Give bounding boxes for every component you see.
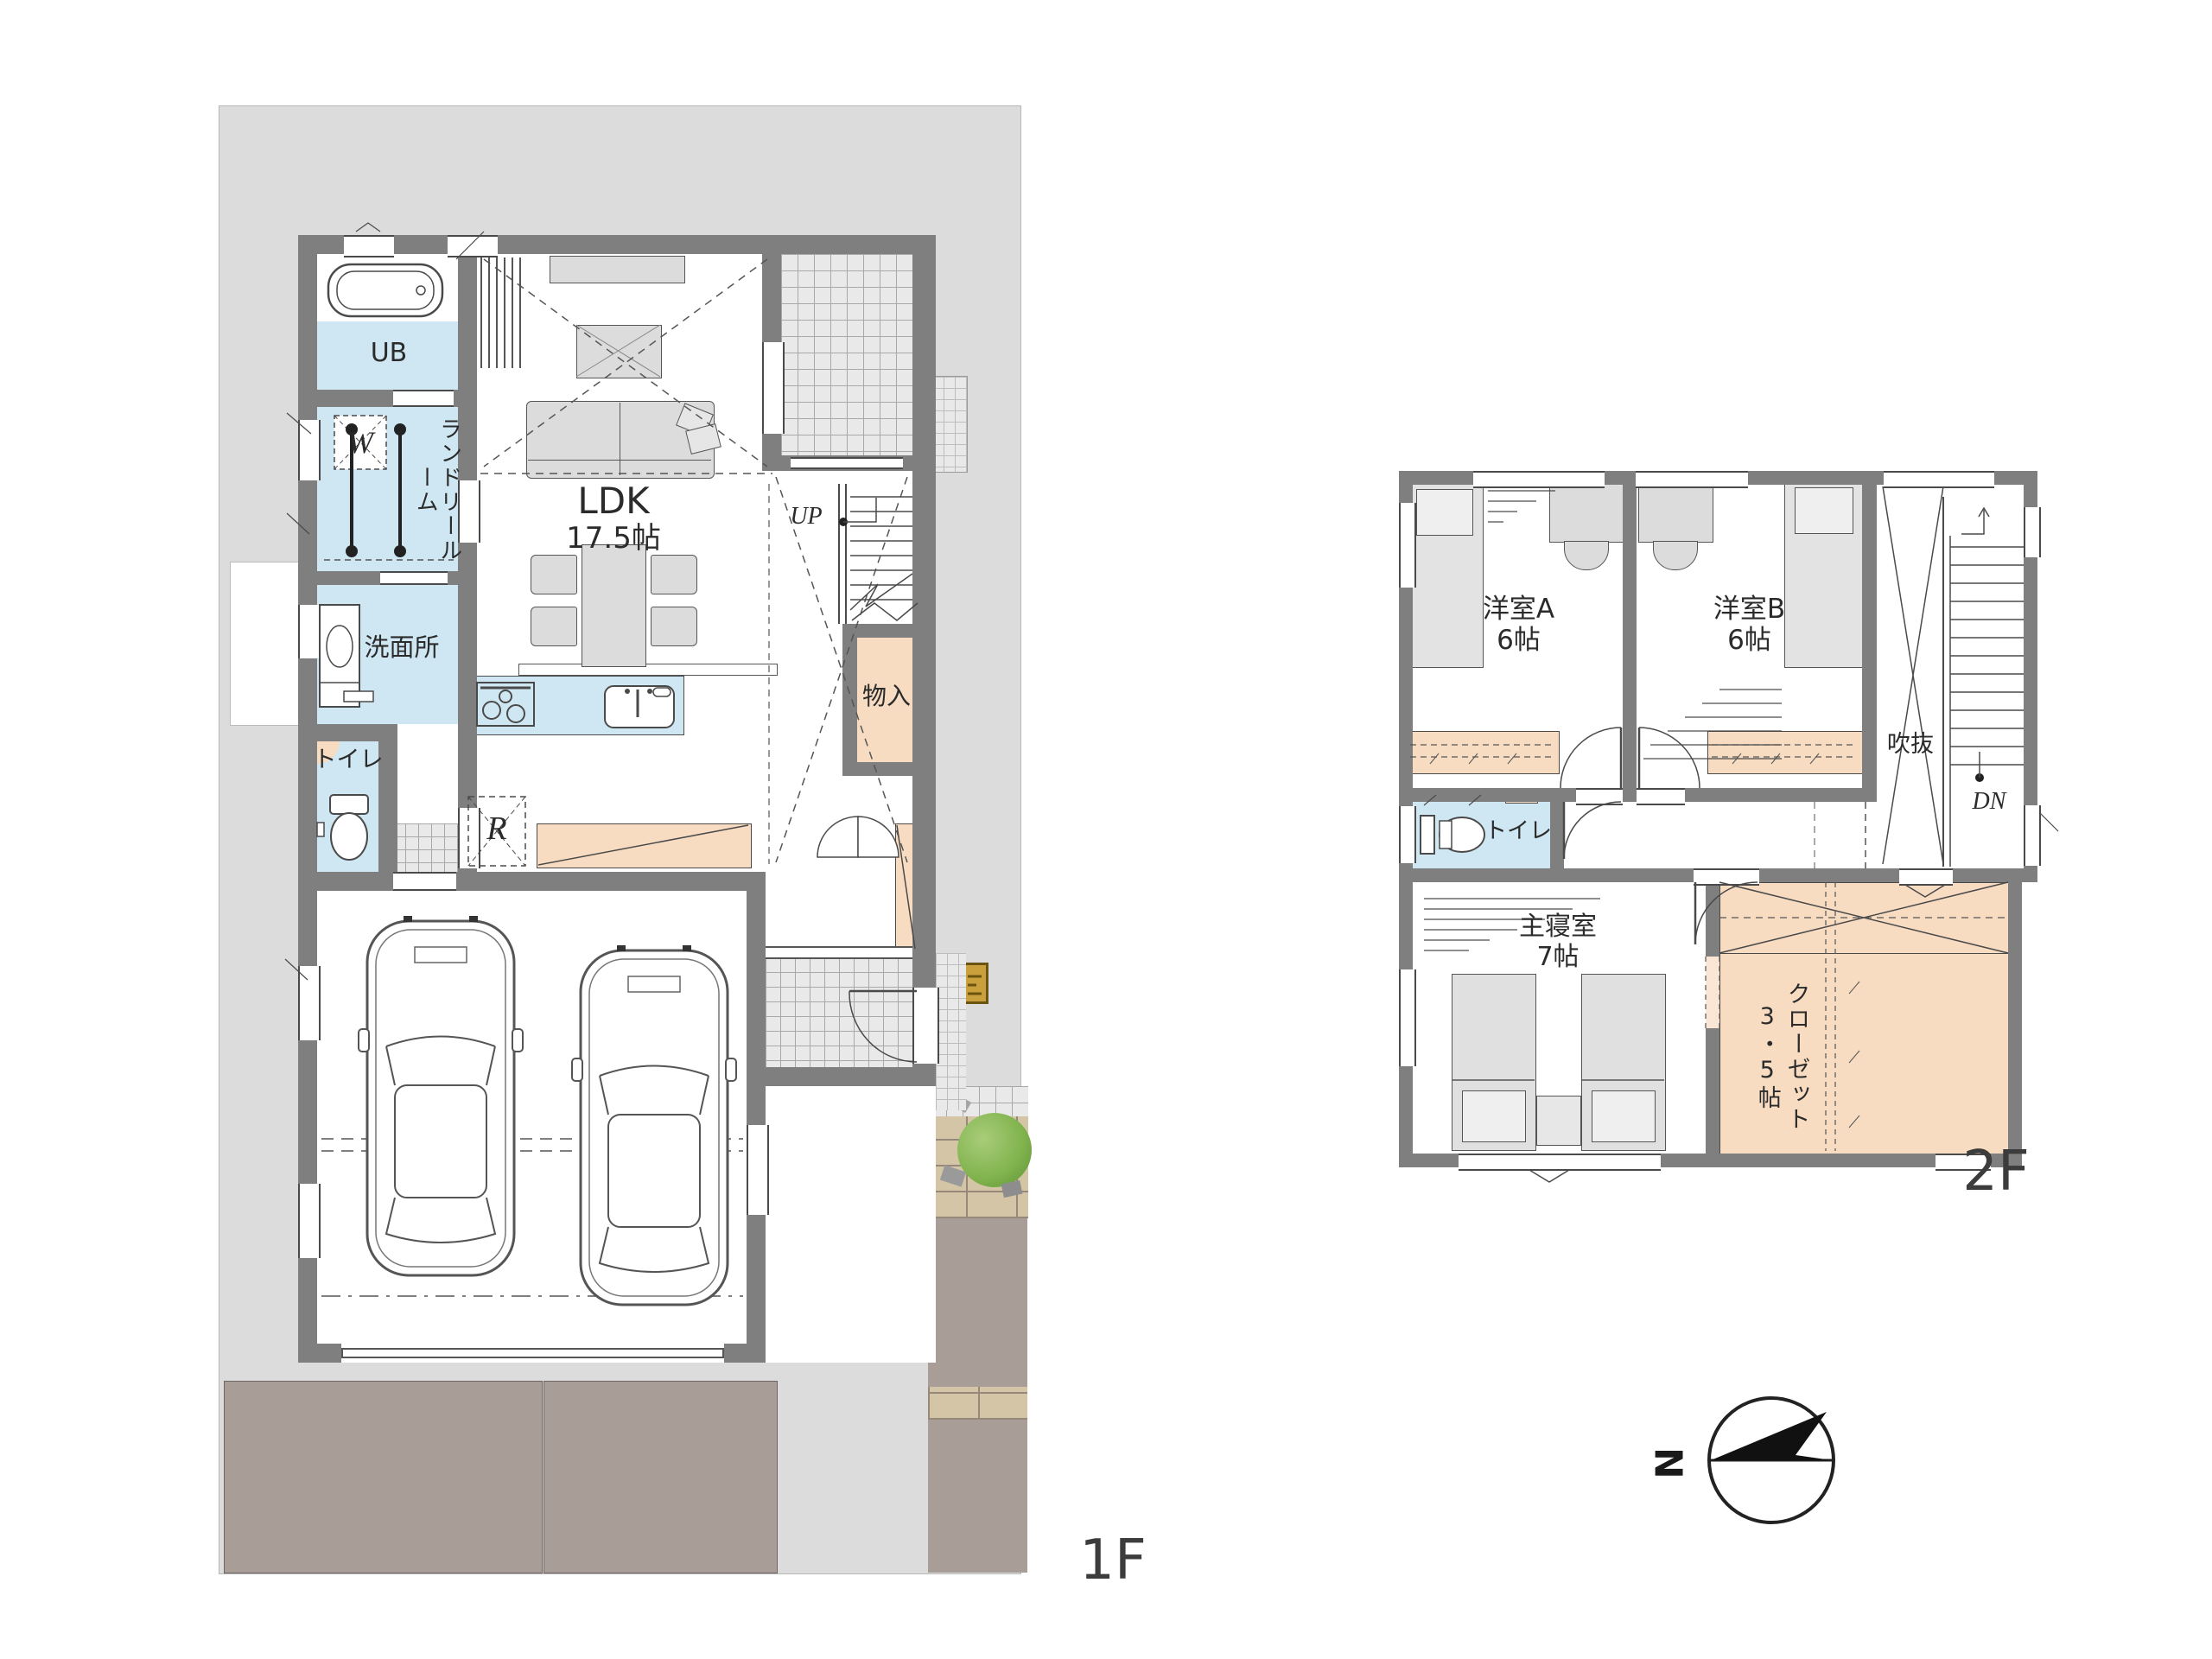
window xyxy=(1399,806,1416,863)
chair xyxy=(1653,541,1698,570)
window xyxy=(1399,503,1416,588)
door-opening xyxy=(1637,788,1685,805)
label-room-b-size: 6帖 xyxy=(1678,626,1821,657)
curtain-hatch xyxy=(480,257,524,368)
pillow xyxy=(1592,1090,1656,1142)
garden-bush xyxy=(957,1113,1032,1187)
label-ub: UB xyxy=(328,339,449,369)
kitchen-counter xyxy=(468,676,684,735)
label-fridge-mark: R xyxy=(477,810,517,849)
terrace-tiles xyxy=(781,254,912,455)
window xyxy=(298,605,321,658)
kitchen-counter-top xyxy=(518,664,778,676)
terrace-window xyxy=(791,457,903,469)
tv-board xyxy=(550,256,685,283)
door-opening xyxy=(393,872,456,891)
window xyxy=(1399,969,1416,1066)
closet-room-a xyxy=(1406,731,1560,774)
label-ldk-size: 17.5帖 xyxy=(536,522,691,556)
door-opening xyxy=(1576,788,1623,805)
driveway-slab-left xyxy=(224,1381,543,1573)
nightstand xyxy=(1536,1096,1581,1146)
window xyxy=(448,235,498,257)
dining-table xyxy=(582,544,646,667)
dining-chair xyxy=(651,555,697,594)
window xyxy=(2024,507,2041,557)
label-master: 主寝室 7帖 xyxy=(1484,912,1631,972)
label-room-a: 洋室A 6帖 xyxy=(1447,594,1590,656)
label-ldk-name: LDK xyxy=(536,480,691,522)
wall xyxy=(842,762,931,776)
kitchen-cupboard xyxy=(537,823,752,868)
coffee-table xyxy=(576,325,662,378)
window xyxy=(1473,471,1605,488)
label-room-b: 洋室B 6帖 xyxy=(1678,594,1821,656)
wall xyxy=(458,254,477,872)
site-notch xyxy=(230,562,302,726)
window xyxy=(1636,471,1748,488)
closet-entry-gap xyxy=(1706,957,1719,1028)
genkan-step xyxy=(766,946,917,959)
terrace-annex-tiles xyxy=(931,376,968,473)
label-washer-mark: W xyxy=(341,425,379,461)
closet-room-b xyxy=(1707,731,1863,774)
window xyxy=(344,235,394,257)
label-closet: クローゼット3・5帖 xyxy=(1752,966,1811,1147)
label-floor-2f: 2F xyxy=(1935,1141,2056,1205)
label-up-mark: UP xyxy=(779,503,833,531)
window xyxy=(747,1125,769,1215)
wall xyxy=(766,1067,936,1086)
floor-plan-canvas: UB ランドリールーム W 洗面所 トイレ LDK 17.5帖 R UP 物入 … xyxy=(0,0,2212,1659)
window xyxy=(1884,471,1994,488)
drive-brick-band xyxy=(928,1387,1027,1420)
window xyxy=(1459,1154,1661,1171)
label-closet-col1: クローゼット xyxy=(1783,982,1810,1132)
wall xyxy=(1623,485,1637,788)
label-closet-col2: 3・5帖 xyxy=(1754,1003,1781,1110)
genkan-tiles xyxy=(766,957,917,1067)
dining-chair xyxy=(531,555,577,594)
wall xyxy=(298,724,397,741)
window xyxy=(762,342,785,434)
label-room-a-size: 6帖 xyxy=(1447,626,1590,657)
pillow xyxy=(1416,489,1473,536)
label-toilet-2f: トイレ xyxy=(1479,819,1557,845)
door-opening xyxy=(2024,805,2041,866)
window xyxy=(298,966,321,1040)
pillow xyxy=(1795,487,1853,534)
wall xyxy=(298,1344,341,1363)
label-room-a-name: 洋室A xyxy=(1447,594,1590,626)
label-laundry-col1: ランドリー xyxy=(436,417,462,538)
entrance-door-opening xyxy=(912,988,939,1064)
porch-tiles xyxy=(936,953,966,1110)
wall xyxy=(1706,882,1719,957)
window xyxy=(298,420,321,480)
pillow xyxy=(1462,1090,1526,1142)
closet-upper-box xyxy=(1719,882,2010,955)
wall xyxy=(1706,1028,1719,1167)
label-compass-north: N xyxy=(1649,1444,1694,1482)
compass-icon xyxy=(1709,1398,1834,1522)
label-void: 吹抜 xyxy=(1877,731,1944,758)
sofa-back-line xyxy=(528,460,711,461)
label-toilet-1f: トイレ xyxy=(309,747,387,773)
wall xyxy=(298,872,766,891)
door-opening xyxy=(380,571,448,585)
wall xyxy=(724,1344,766,1363)
garage-entry-step xyxy=(392,823,458,872)
label-storage-1f: 物入 xyxy=(854,683,919,710)
wall xyxy=(912,235,936,1086)
label-dn-mark: DN xyxy=(1955,788,2024,816)
label-washroom: 洗面所 xyxy=(341,633,462,662)
label-master-name: 主寝室 xyxy=(1484,912,1631,943)
door-opening xyxy=(393,390,454,407)
window xyxy=(298,1184,321,1258)
meter-box-icon xyxy=(963,963,988,1004)
label-room-b-name: 洋室B xyxy=(1678,594,1821,626)
garage-door xyxy=(341,1348,724,1358)
driveway-slab-right xyxy=(543,1381,778,1573)
label-master-size: 7帖 xyxy=(1484,943,1631,973)
dining-chair xyxy=(531,607,577,646)
door-opening xyxy=(1899,868,1953,886)
chair xyxy=(1564,541,1609,570)
wall xyxy=(1862,485,1877,788)
label-laundry: ランドリールーム xyxy=(413,413,461,567)
sofa-seat-line xyxy=(620,403,620,475)
label-ldk: LDK 17.5帖 xyxy=(536,480,691,556)
door-opening xyxy=(1694,868,1759,886)
label-floor-1f: 1F xyxy=(1052,1529,1173,1593)
wall xyxy=(747,872,766,1363)
dining-chair xyxy=(651,607,697,646)
wall xyxy=(2008,882,2022,1167)
